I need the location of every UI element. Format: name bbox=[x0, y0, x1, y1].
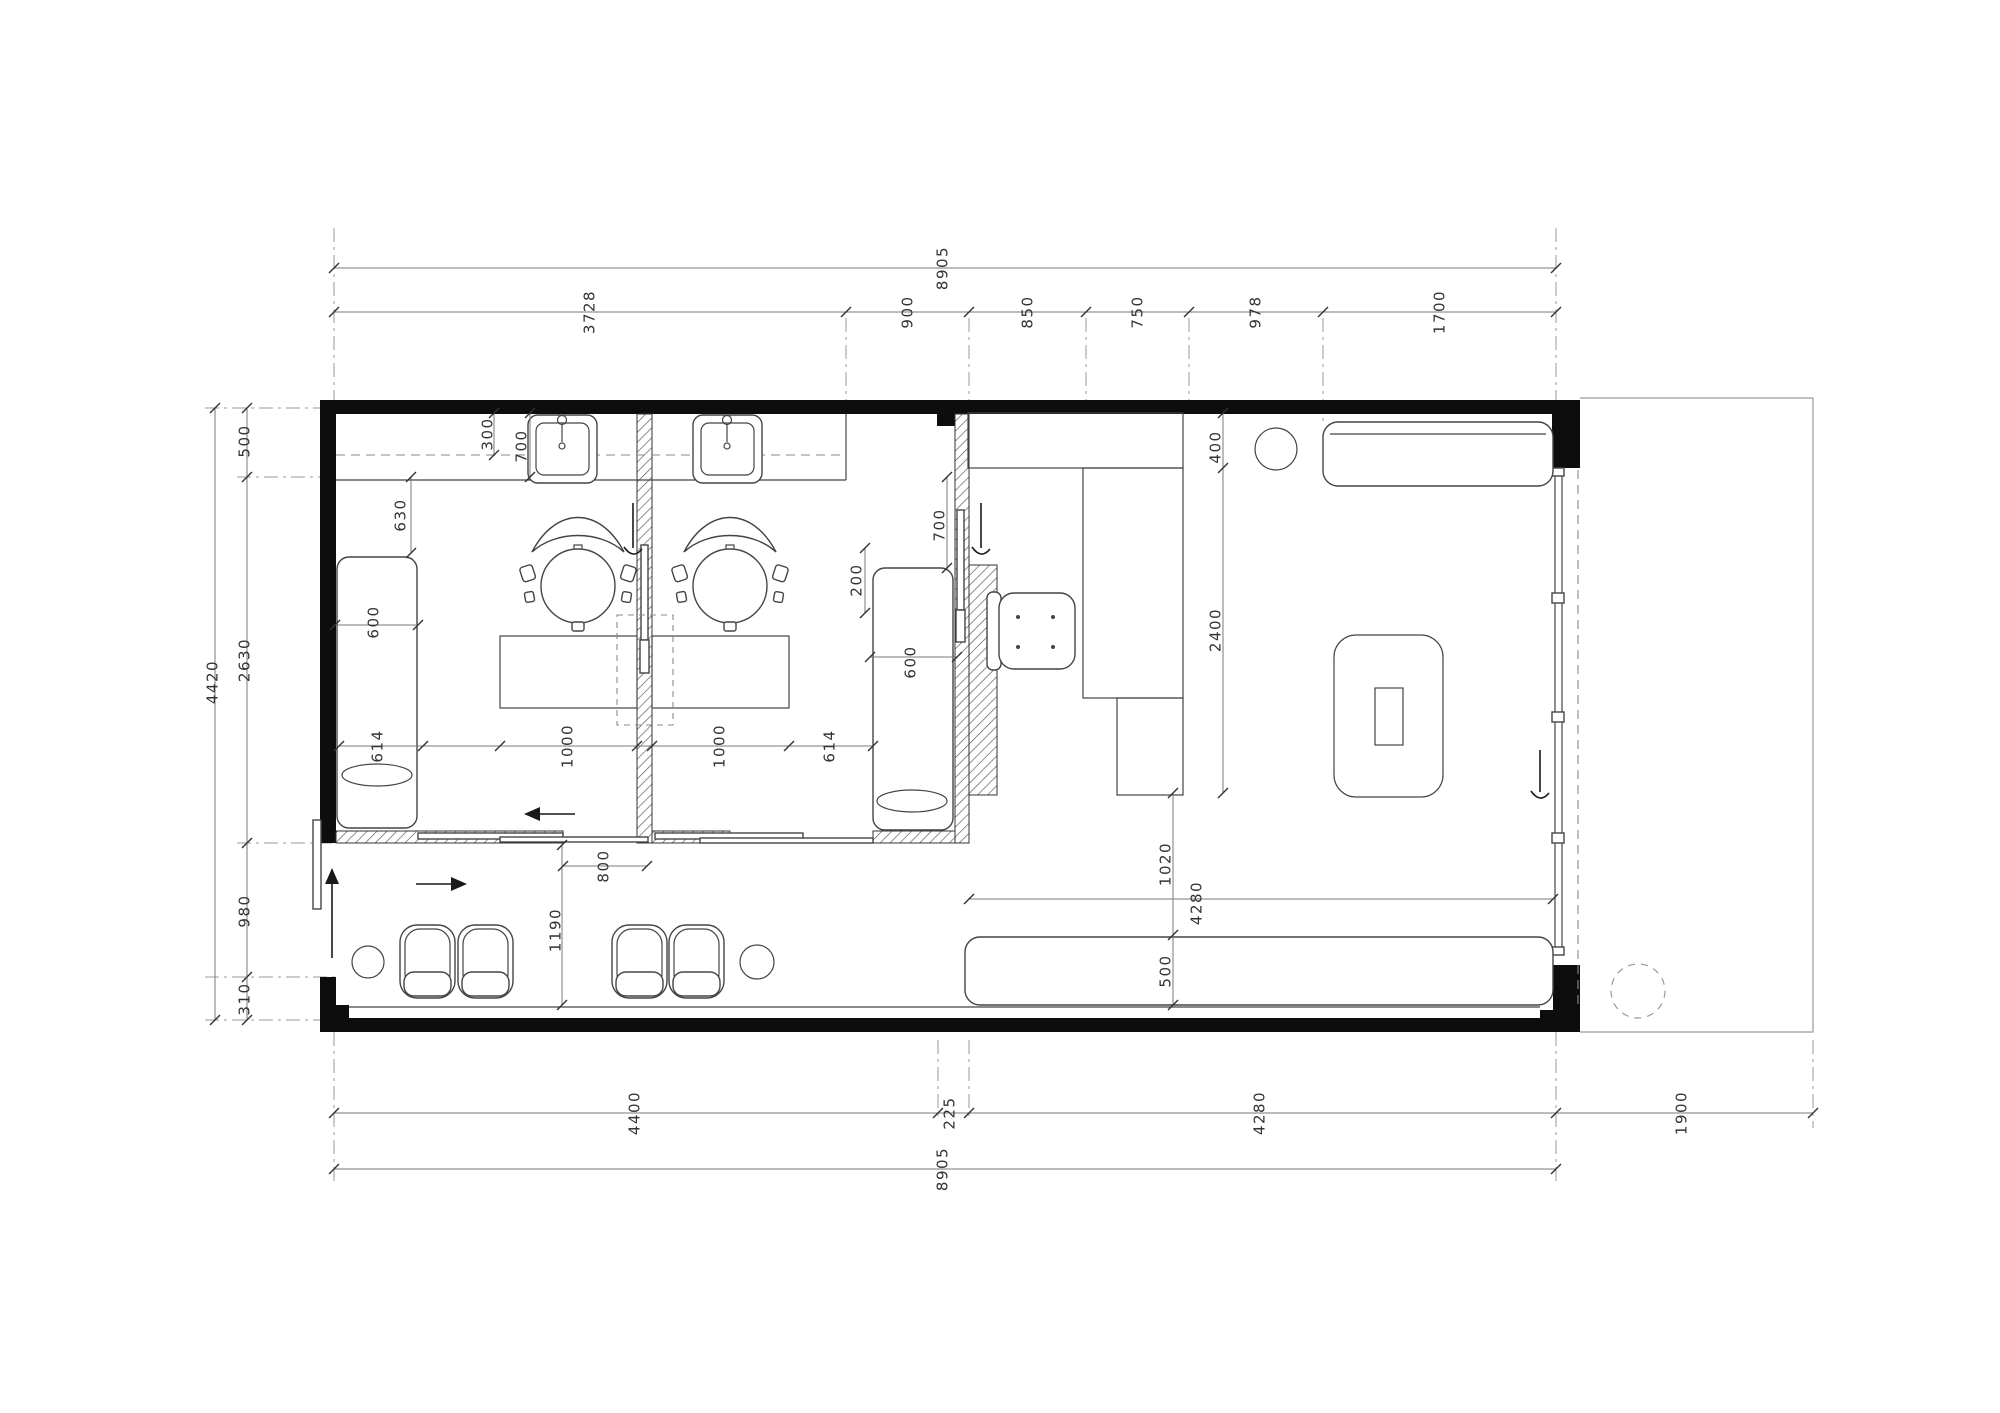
reception-desk-side bbox=[1083, 468, 1183, 698]
partition-b-pocket-leaf bbox=[957, 510, 964, 610]
dim-label: 2400 bbox=[1207, 608, 1225, 652]
swing-arrow-glazing bbox=[1531, 750, 1549, 798]
datum-lines bbox=[205, 228, 1813, 1182]
dim-label: 4420 bbox=[204, 660, 222, 704]
entry-arrow-up bbox=[325, 868, 339, 958]
dim-label: 614 bbox=[369, 729, 387, 762]
reception-armchair bbox=[987, 592, 1075, 670]
floor-plan-canvas: 8905372890085075097817004420500263098031… bbox=[0, 0, 2000, 1413]
dim-label: 614 bbox=[821, 729, 839, 762]
dim-label: 700 bbox=[513, 429, 531, 462]
dim-label: 4400 bbox=[626, 1091, 644, 1135]
stool bbox=[1255, 428, 1297, 470]
waiting-chair bbox=[612, 925, 667, 998]
dim-label: 225 bbox=[941, 1096, 959, 1129]
partition-a-pocket-leaf-end bbox=[640, 640, 649, 673]
bench-top-right bbox=[1323, 422, 1553, 486]
wall-left-upper bbox=[320, 400, 336, 843]
dim-label: 700 bbox=[931, 508, 949, 541]
dim-label: 400 bbox=[1207, 430, 1225, 463]
sink-room1 bbox=[528, 415, 597, 483]
partition-a-pocket-leaf bbox=[641, 545, 648, 640]
room2-door-leaf-2 bbox=[700, 838, 873, 843]
partition-b-pocket-leaf-end bbox=[956, 610, 965, 642]
site-boundary bbox=[1580, 398, 1813, 1032]
entrance-door-leaf bbox=[313, 820, 321, 909]
dim-label: 900 bbox=[899, 295, 917, 328]
wall-bottom bbox=[333, 1018, 1580, 1032]
dim-label: 1190 bbox=[547, 908, 565, 952]
dim-label: 2630 bbox=[236, 638, 254, 682]
dim-label: 978 bbox=[1247, 295, 1265, 328]
dim-label: 4280 bbox=[1188, 881, 1206, 925]
dim-label: 850 bbox=[1019, 295, 1037, 328]
dim-label: 600 bbox=[365, 605, 383, 638]
door-arrow-right bbox=[416, 877, 467, 891]
waiting-chair bbox=[458, 925, 513, 998]
dim-label: 750 bbox=[1129, 295, 1147, 328]
room1-door-leaf-2 bbox=[500, 837, 648, 842]
dim-label: 3728 bbox=[581, 290, 599, 334]
dim-label: 300 bbox=[479, 417, 497, 450]
sink-room2 bbox=[693, 415, 762, 483]
styling-chair-room2 bbox=[671, 518, 789, 632]
coffee-table bbox=[1334, 635, 1443, 797]
waiting-chair bbox=[669, 925, 724, 998]
dim-label: 1020 bbox=[1157, 842, 1175, 886]
dim-label: 630 bbox=[392, 498, 410, 531]
reception-desk-top bbox=[968, 413, 1183, 468]
dim-label: 1900 bbox=[1673, 1091, 1691, 1135]
dim-label: 8905 bbox=[934, 1147, 952, 1191]
wall-right-step bbox=[1540, 1010, 1554, 1023]
wall-corner-top-right bbox=[1552, 400, 1580, 468]
dim-label: 600 bbox=[902, 645, 920, 678]
dim-label: 1000 bbox=[711, 724, 729, 768]
side-table-right bbox=[740, 945, 774, 979]
dim-label: 800 bbox=[595, 849, 613, 882]
floor-plan-page: 8905372890085075097817004420500263098031… bbox=[0, 0, 2000, 1413]
dim-label: 980 bbox=[236, 894, 254, 927]
dim-label: 500 bbox=[236, 424, 254, 457]
room2-bottom-wall-right bbox=[873, 831, 955, 843]
tree-dashed-circle bbox=[1611, 964, 1665, 1018]
bench-room1 bbox=[337, 557, 417, 828]
dim-label: 310 bbox=[236, 982, 254, 1015]
dim-label: 500 bbox=[1157, 954, 1175, 987]
bench-bottom bbox=[349, 937, 1553, 1007]
styling-chair-room1 bbox=[519, 518, 637, 632]
door-arrow-left bbox=[524, 807, 575, 821]
waiting-chair bbox=[400, 925, 455, 998]
dimension-labels: 8905372890085075097817004420500263098031… bbox=[204, 246, 1819, 1191]
wall-left-step bbox=[333, 1005, 349, 1019]
swing-arrow-partition-b bbox=[972, 503, 990, 554]
wall-corner-bottom-right bbox=[1553, 965, 1580, 1032]
dim-label: 4280 bbox=[1251, 1091, 1269, 1135]
dim-label: 1000 bbox=[559, 724, 577, 768]
reception-desk-side-lower bbox=[1117, 698, 1183, 795]
glazed-facade bbox=[1552, 468, 1578, 1010]
bench-room2 bbox=[873, 568, 953, 830]
dim-label: 1700 bbox=[1431, 290, 1449, 334]
side-table-left bbox=[352, 946, 384, 978]
dim-label: 8905 bbox=[934, 246, 952, 290]
dim-label: 200 bbox=[848, 563, 866, 596]
